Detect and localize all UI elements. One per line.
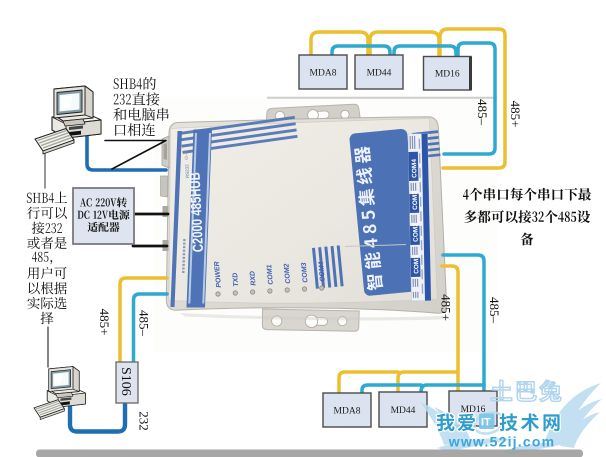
svg-text:COM1: COM1 bbox=[413, 255, 420, 274]
svg-text:485–: 485– bbox=[137, 310, 152, 337]
svg-text:⊙-⊕: ⊙-⊕ bbox=[184, 150, 190, 160]
svg-text:TXD: TXD bbox=[232, 272, 240, 287]
svg-text:MD44: MD44 bbox=[391, 406, 416, 416]
svg-text:MD44: MD44 bbox=[367, 68, 392, 78]
svg-text:485+: 485+ bbox=[508, 101, 523, 128]
svg-text:485+: 485+ bbox=[439, 294, 454, 321]
svg-text:485–: 485– bbox=[475, 99, 490, 126]
svg-text:COM2: COM2 bbox=[412, 223, 419, 242]
svg-text:485–: 485– bbox=[487, 297, 502, 324]
svg-text:485+: 485+ bbox=[97, 309, 112, 336]
svg-text:COM3: COM3 bbox=[412, 191, 419, 210]
svg-text:RXD: RXD bbox=[249, 271, 257, 286]
svg-text:IT: IT bbox=[481, 417, 491, 429]
svg-text:MDA8: MDA8 bbox=[334, 406, 361, 416]
svg-text:MDA8: MDA8 bbox=[310, 68, 337, 78]
svg-text:COM4: COM4 bbox=[411, 159, 418, 178]
svg-text:MD16: MD16 bbox=[435, 70, 460, 80]
svg-text:S106: S106 bbox=[118, 367, 133, 396]
svg-text:232: 232 bbox=[137, 411, 152, 431]
svg-text:www.52ij.com: www.52ij.com bbox=[448, 434, 555, 450]
